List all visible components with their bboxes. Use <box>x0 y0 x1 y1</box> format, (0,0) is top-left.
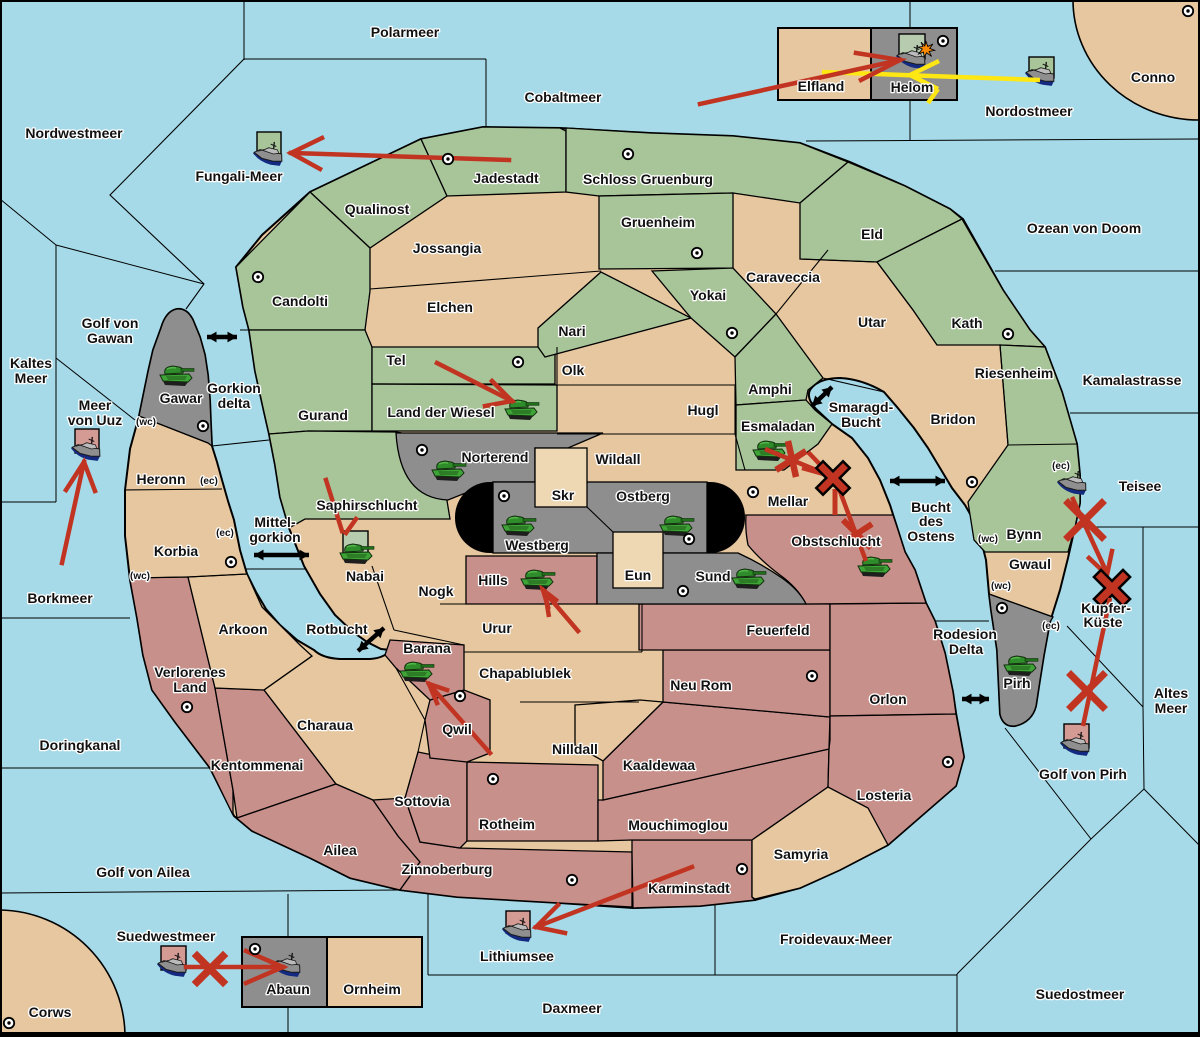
svg-text:Qwil: Qwil <box>442 721 472 737</box>
svg-text:Gawar: Gawar <box>160 390 203 406</box>
svg-text:Kamalastrasse: Kamalastrasse <box>1083 372 1182 388</box>
svg-text:Ozean von Doom: Ozean von Doom <box>1027 220 1141 236</box>
svg-text:Doringkanal: Doringkanal <box>40 737 121 753</box>
svg-text:Gurand: Gurand <box>298 407 348 423</box>
svg-text:Heronn: Heronn <box>137 471 186 487</box>
svg-text:Skr: Skr <box>552 487 575 503</box>
svg-text:Nordwestmeer: Nordwestmeer <box>25 125 123 141</box>
svg-text:Olk: Olk <box>562 362 585 378</box>
svg-text:delta: delta <box>218 395 251 411</box>
svg-text:(ec): (ec) <box>1052 461 1070 472</box>
svg-text:Conno: Conno <box>1131 69 1175 85</box>
svg-text:(ec): (ec) <box>1042 621 1060 632</box>
svg-text:Candolti: Candolti <box>272 293 328 309</box>
svg-text:Küste: Küste <box>1084 614 1123 630</box>
svg-text:Kaltes: Kaltes <box>10 355 52 371</box>
svg-text:Elchen: Elchen <box>427 299 473 315</box>
svg-text:Polarmeer: Polarmeer <box>371 24 440 40</box>
svg-text:Bynn: Bynn <box>1007 526 1042 542</box>
svg-text:Ostberg: Ostberg <box>616 488 670 504</box>
svg-text:Froidevaux-Meer: Froidevaux-Meer <box>780 931 893 947</box>
svg-text:Gruenheim: Gruenheim <box>621 214 695 230</box>
svg-text:Amphi: Amphi <box>748 381 792 397</box>
svg-text:Lithiumsee: Lithiumsee <box>480 948 554 964</box>
svg-text:Esmaladan: Esmaladan <box>741 418 815 434</box>
svg-text:Saphirschlucht: Saphirschlucht <box>316 497 417 513</box>
svg-text:Arkoon: Arkoon <box>219 621 268 637</box>
svg-text:Rotbucht: Rotbucht <box>306 621 368 637</box>
svg-text:Borkmeer: Borkmeer <box>27 590 93 606</box>
svg-text:Westberg: Westberg <box>505 537 569 553</box>
svg-text:Charaua: Charaua <box>297 717 353 733</box>
svg-text:Yokai: Yokai <box>690 287 726 303</box>
svg-text:Nabai: Nabai <box>346 568 384 584</box>
svg-text:Samyria: Samyria <box>774 846 829 862</box>
svg-text:Nari: Nari <box>558 323 585 339</box>
svg-text:Nordostmeer: Nordostmeer <box>985 103 1073 119</box>
svg-text:Karminstadt: Karminstadt <box>648 880 730 896</box>
svg-text:Caraveccia: Caraveccia <box>746 269 820 285</box>
svg-text:Norterend: Norterend <box>462 449 529 465</box>
svg-text:Mouchimoglou: Mouchimoglou <box>628 817 728 833</box>
svg-text:Gwaul: Gwaul <box>1009 556 1051 572</box>
svg-text:Jadestadt: Jadestadt <box>473 170 539 186</box>
svg-text:Teisee: Teisee <box>1119 478 1162 494</box>
svg-text:Abaun: Abaun <box>266 981 310 997</box>
svg-text:Sottovia: Sottovia <box>394 793 449 809</box>
svg-text:Barana: Barana <box>403 640 451 656</box>
svg-text:Obstschlucht: Obstschlucht <box>791 533 881 549</box>
svg-text:Cobaltmeer: Cobaltmeer <box>524 89 602 105</box>
svg-text:Suedwestmeer: Suedwestmeer <box>117 928 216 944</box>
svg-text:Chapablublek: Chapablublek <box>479 665 571 681</box>
svg-text:Mellar: Mellar <box>768 493 809 509</box>
svg-text:Schloss Gruenburg: Schloss Gruenburg <box>583 171 713 187</box>
svg-text:Utar: Utar <box>858 314 887 330</box>
svg-text:Bucht: Bucht <box>841 414 881 430</box>
svg-text:Golf von Pirh: Golf von Pirh <box>1039 766 1127 782</box>
svg-text:Mittel-: Mittel- <box>254 514 296 530</box>
svg-text:Land: Land <box>173 679 206 695</box>
svg-text:Golf von Ailea: Golf von Ailea <box>96 864 190 880</box>
svg-text:Riesenheim: Riesenheim <box>975 365 1054 381</box>
svg-text:Sund: Sund <box>696 568 731 584</box>
svg-text:Orlon: Orlon <box>869 691 906 707</box>
svg-text:Elfland: Elfland <box>798 78 845 94</box>
svg-text:Pirh: Pirh <box>1003 675 1030 691</box>
svg-text:Land der Wiesel: Land der Wiesel <box>387 404 494 420</box>
svg-text:Corws: Corws <box>29 1004 72 1020</box>
svg-text:Gorkion: Gorkion <box>207 380 261 396</box>
svg-text:Nogk: Nogk <box>419 583 454 599</box>
svg-text:Fungali-Meer: Fungali-Meer <box>195 168 283 184</box>
svg-text:Wildall: Wildall <box>596 451 641 467</box>
svg-text:Golf von: Golf von <box>82 315 139 331</box>
svg-text:Smaragd-: Smaragd- <box>829 399 894 415</box>
svg-text:(ec): (ec) <box>216 528 234 539</box>
svg-text:Neu Rom: Neu Rom <box>670 677 731 693</box>
svg-text:Meer: Meer <box>15 370 48 386</box>
svg-text:Ostens: Ostens <box>907 528 955 544</box>
svg-text:Suedostmeer: Suedostmeer <box>1036 986 1125 1002</box>
svg-text:Gawan: Gawan <box>87 330 133 346</box>
svg-text:Kath: Kath <box>951 315 982 331</box>
svg-text:Feuerfeld: Feuerfeld <box>746 622 809 638</box>
svg-text:Meer: Meer <box>79 397 112 413</box>
svg-text:Urur: Urur <box>482 620 512 636</box>
svg-text:Eld: Eld <box>861 226 883 242</box>
svg-text:Hills: Hills <box>478 572 508 588</box>
svg-text:(ec): (ec) <box>200 476 218 487</box>
svg-text:Hugl: Hugl <box>687 402 718 418</box>
svg-text:Kaaldewaa: Kaaldewaa <box>623 757 696 773</box>
svg-text:Eun: Eun <box>625 567 651 583</box>
svg-text:Ornheim: Ornheim <box>343 981 401 997</box>
svg-text:(wc): (wc) <box>978 534 998 545</box>
svg-text:(wc): (wc) <box>991 581 1011 592</box>
svg-text:Qualinost: Qualinost <box>345 201 410 217</box>
svg-text:des: des <box>919 513 943 529</box>
svg-text:von Uuz: von Uuz <box>68 412 122 428</box>
svg-text:Altes: Altes <box>1154 685 1188 701</box>
svg-text:Zinnoberburg: Zinnoberburg <box>402 861 493 877</box>
svg-text:Nilldall: Nilldall <box>552 741 598 757</box>
svg-text:Tel: Tel <box>386 352 405 368</box>
svg-text:(wc): (wc) <box>136 417 156 428</box>
svg-text:Helom: Helom <box>891 79 934 95</box>
svg-text:Delta: Delta <box>949 641 983 657</box>
svg-text:(wc): (wc) <box>130 571 150 582</box>
svg-text:Korbia: Korbia <box>154 543 199 559</box>
svg-text:Ailea: Ailea <box>323 842 357 858</box>
svg-text:Jossangia: Jossangia <box>413 240 482 256</box>
svg-text:Kentommenai: Kentommenai <box>211 757 304 773</box>
svg-text:Rotheim: Rotheim <box>479 816 535 832</box>
svg-text:Losteria: Losteria <box>857 787 912 803</box>
svg-text:gorkion: gorkion <box>249 529 300 545</box>
svg-text:Bridon: Bridon <box>930 411 975 427</box>
svg-text:Rodesion: Rodesion <box>933 626 997 642</box>
svg-text:Daxmeer: Daxmeer <box>542 1000 602 1016</box>
svg-text:Meer: Meer <box>1155 700 1188 716</box>
svg-text:Verlorenes: Verlorenes <box>154 664 226 680</box>
